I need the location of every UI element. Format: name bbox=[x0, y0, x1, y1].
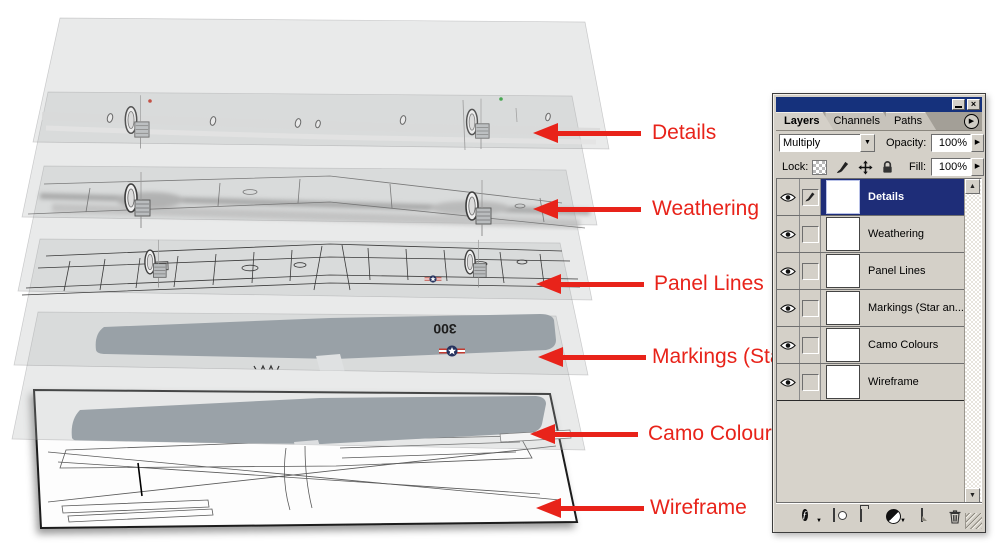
layer-row-wireframe[interactable]: Wireframe bbox=[777, 364, 965, 401]
layer-row-markings[interactable]: Markings (Star an... bbox=[777, 290, 965, 327]
visibility-toggle[interactable] bbox=[777, 364, 800, 400]
layer-name: Panel Lines bbox=[868, 265, 926, 277]
lock-position-move-icon[interactable] bbox=[858, 160, 873, 175]
palette-menu-button[interactable]: ▶ bbox=[964, 114, 979, 129]
layer-thumbnail[interactable] bbox=[826, 254, 860, 288]
visibility-toggle[interactable] bbox=[777, 290, 800, 326]
scroll-down-icon[interactable]: ▼ bbox=[965, 488, 980, 503]
resize-grip[interactable] bbox=[965, 513, 982, 529]
eye-icon bbox=[780, 303, 796, 314]
blend-mode-value[interactable]: Multiply bbox=[779, 134, 861, 152]
layer-name: Markings (Star an... bbox=[868, 302, 964, 314]
minimize-button[interactable] bbox=[952, 99, 965, 110]
scrollbar[interactable]: ▲ ▼ bbox=[964, 179, 981, 503]
scroll-up-icon[interactable]: ▲ bbox=[965, 179, 980, 194]
palette-bottom-bar: ƒ ▼ ▼ bbox=[776, 502, 982, 529]
lock-row: Lock: Fill: 100% ▶ bbox=[776, 155, 982, 179]
caret-down-icon: ▼ bbox=[900, 518, 906, 524]
tutorial-canvas: { "annotations": { "arrow_color": "#e823… bbox=[0, 0, 1000, 550]
layer-name: Camo Colours bbox=[868, 339, 938, 351]
link-cell[interactable] bbox=[800, 216, 821, 252]
label-details: Details bbox=[652, 122, 716, 143]
page-fold-icon bbox=[922, 516, 927, 521]
layer-style-fx-icon: ƒ bbox=[802, 509, 808, 521]
layer-name: Wireframe bbox=[868, 376, 919, 388]
tab-channels[interactable]: Channels bbox=[825, 112, 893, 130]
close-button[interactable]: × bbox=[967, 99, 980, 110]
blend-mode-row: Multiply ▼ Opacity: 100% ▶ bbox=[776, 131, 982, 155]
link-cell[interactable] bbox=[800, 253, 821, 289]
opacity-slider-button[interactable]: ▶ bbox=[971, 134, 984, 152]
wing-number: 300 bbox=[433, 321, 457, 337]
paint-brush-icon bbox=[804, 191, 816, 203]
lock-paint-brush-icon[interactable] bbox=[835, 160, 850, 175]
arrowhead-icon bbox=[530, 424, 555, 444]
fill-label: Fill: bbox=[909, 161, 926, 173]
tab-paths[interactable]: Paths bbox=[886, 112, 936, 130]
eye-icon bbox=[780, 377, 796, 388]
mask-circle-icon bbox=[838, 511, 847, 520]
new-layer-button[interactable] bbox=[921, 508, 923, 522]
eye-icon bbox=[780, 266, 796, 277]
layer-thumbnail[interactable] bbox=[826, 328, 860, 362]
layers-palette: × LayersChannelsPaths ▶ Multiply ▼ Opaci… bbox=[772, 93, 986, 533]
eye-icon bbox=[780, 340, 796, 351]
layers-list: Details Weathering Panel Lines bbox=[776, 178, 982, 504]
label-panel-lines: Panel Lines bbox=[654, 273, 764, 294]
arrowhead-icon bbox=[533, 199, 558, 219]
label-wireframe: Wireframe bbox=[650, 497, 747, 518]
layer-name: Details bbox=[868, 191, 904, 203]
fill-input[interactable]: 100% bbox=[931, 158, 971, 176]
arrowhead-icon bbox=[538, 347, 563, 367]
sheet-details bbox=[33, 18, 609, 150]
visibility-toggle[interactable] bbox=[777, 253, 800, 289]
link-cell[interactable] bbox=[800, 327, 821, 363]
layer-thumbnail[interactable] bbox=[826, 291, 860, 325]
visibility-toggle[interactable] bbox=[777, 327, 800, 363]
lock-label: Lock: bbox=[782, 161, 808, 173]
link-cell[interactable] bbox=[800, 179, 821, 215]
palette-tabs: LayersChannelsPaths ▶ bbox=[776, 112, 982, 131]
label-markings: Markings (Star bbox=[652, 346, 789, 367]
eye-icon bbox=[780, 192, 796, 203]
lock-all-padlock-icon[interactable] bbox=[881, 160, 894, 174]
folder-tab-icon bbox=[860, 505, 869, 509]
fill-slider-button[interactable]: ▶ bbox=[971, 158, 984, 176]
half-circle-adjustment-icon bbox=[886, 509, 901, 524]
new-group-folder-button[interactable] bbox=[860, 508, 862, 522]
arrowhead-icon bbox=[536, 498, 561, 518]
blend-mode-select[interactable]: Multiply ▼ bbox=[779, 134, 875, 152]
eye-icon bbox=[780, 229, 796, 240]
opacity-label: Opacity: bbox=[886, 137, 926, 149]
layer-style-button[interactable]: ƒ ▼ bbox=[802, 509, 808, 521]
visibility-toggle[interactable] bbox=[777, 216, 800, 252]
delete-layer-button[interactable] bbox=[948, 509, 962, 527]
chevron-down-icon[interactable]: ▼ bbox=[860, 134, 875, 152]
layer-thumbnail[interactable] bbox=[826, 365, 860, 399]
link-cell[interactable] bbox=[800, 290, 821, 326]
minimize-icon bbox=[955, 106, 962, 108]
layer-thumbnail[interactable] bbox=[826, 217, 860, 251]
link-cell[interactable] bbox=[800, 364, 821, 400]
layer-row-panel-lines[interactable]: Panel Lines bbox=[777, 253, 965, 290]
palette-titlebar[interactable]: × bbox=[776, 97, 982, 112]
tab-layers[interactable]: Layers bbox=[776, 112, 833, 130]
layer-thumbnail[interactable] bbox=[826, 180, 860, 214]
layer-name: Weathering bbox=[868, 228, 924, 240]
layer-row-camo-colours[interactable]: Camo Colours bbox=[777, 327, 965, 364]
layer-row-details[interactable]: Details bbox=[777, 179, 965, 216]
layers-list-empty-area bbox=[777, 401, 965, 503]
trash-icon bbox=[948, 509, 962, 524]
lock-transparency-icon[interactable] bbox=[812, 160, 827, 175]
label-camo-colours: Camo Colours bbox=[648, 423, 782, 444]
visibility-toggle[interactable] bbox=[777, 179, 800, 215]
arrowhead-icon bbox=[536, 274, 561, 294]
opacity-input[interactable]: 100% bbox=[931, 134, 971, 152]
label-weathering: Weathering bbox=[652, 198, 759, 219]
arrowhead-icon bbox=[533, 123, 558, 143]
layer-row-weathering[interactable]: Weathering bbox=[777, 216, 965, 253]
adjustment-layer-button[interactable]: ▼ bbox=[886, 509, 901, 527]
add-layer-mask-button[interactable] bbox=[833, 508, 835, 522]
caret-down-icon: ▼ bbox=[816, 518, 822, 524]
